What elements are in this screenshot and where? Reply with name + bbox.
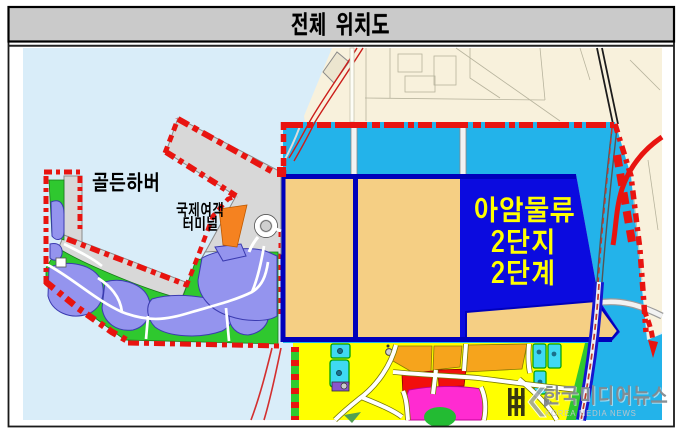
svg-text:KOREA MEDIA NEWS: KOREA MEDIA NEWS <box>545 409 637 418</box>
